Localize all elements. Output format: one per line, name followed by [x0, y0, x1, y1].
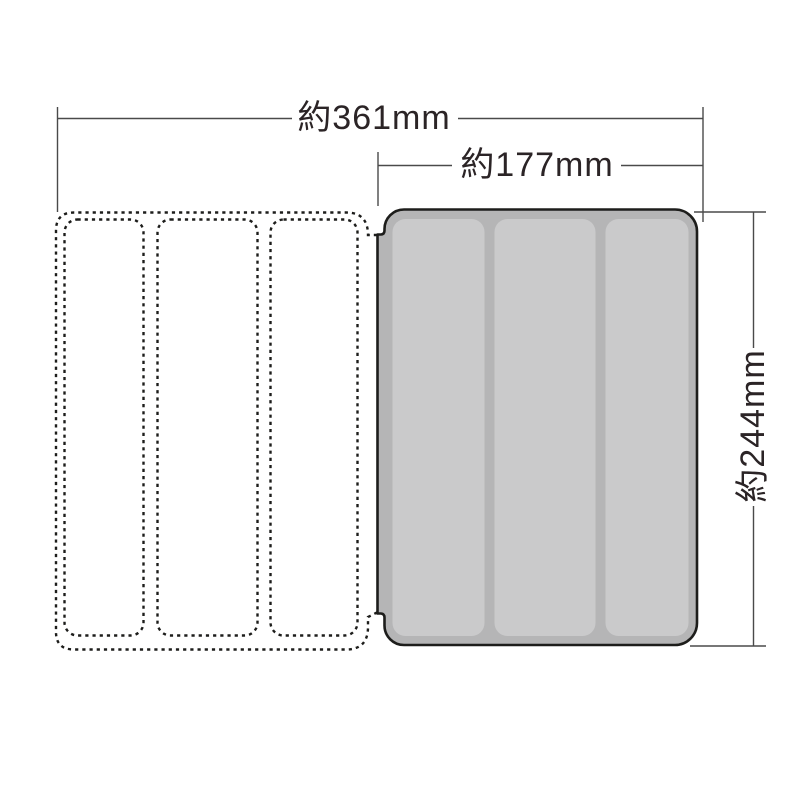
dimension-label-total-width: 約361mm [297, 101, 450, 135]
dimension-label-case-width: 約177mm [460, 148, 613, 182]
dimension-label-case-height: 約244mm [736, 349, 770, 502]
dimension-diagram: 約361mm 約177mm 約244mm [0, 0, 800, 800]
cover-panel-3-dotted [271, 220, 358, 636]
case-panel-1 [393, 219, 485, 636]
cover-outline-dotted [56, 213, 377, 650]
case-back-shell [378, 210, 698, 646]
cover-opened-dotted [56, 213, 377, 650]
cover-panel-2-dotted [158, 220, 258, 636]
case-panel-3 [606, 219, 689, 636]
case-panel-2 [495, 219, 596, 636]
cover-panel-1-dotted [65, 220, 144, 636]
